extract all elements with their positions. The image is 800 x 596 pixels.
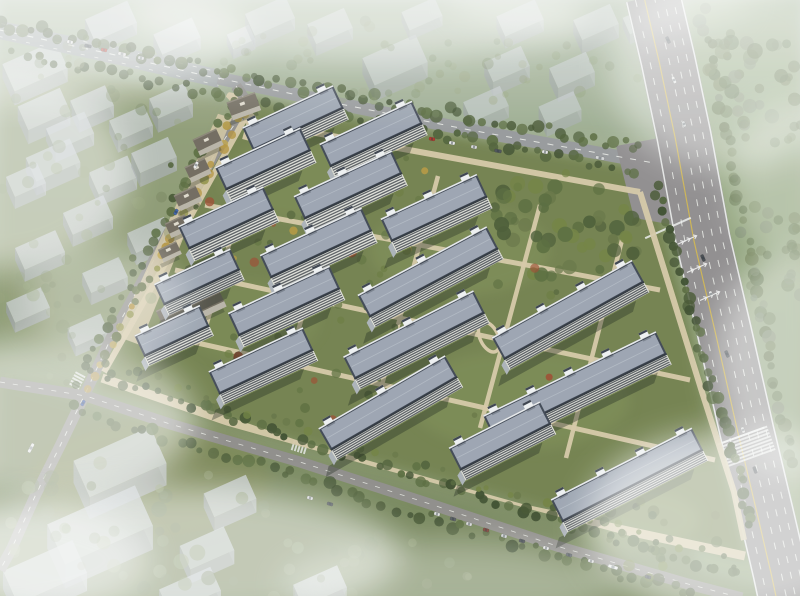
masterplan-aerial-rendering <box>0 0 800 596</box>
aerial-render-stage <box>0 0 800 596</box>
atmosphere-veil <box>0 0 800 596</box>
